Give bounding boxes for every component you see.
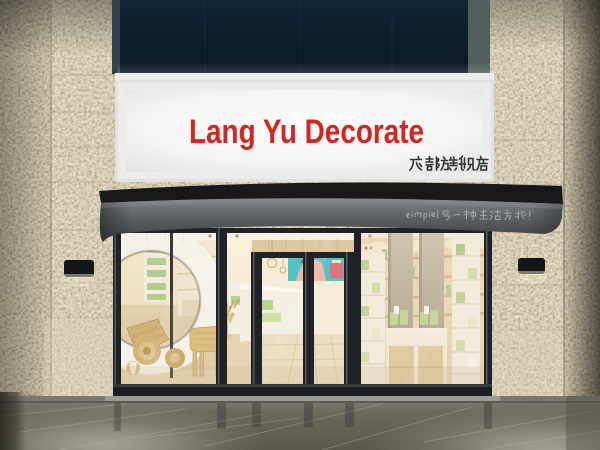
svg-text:Lang Yu Decorate: Lang Yu Decorate xyxy=(189,113,424,151)
